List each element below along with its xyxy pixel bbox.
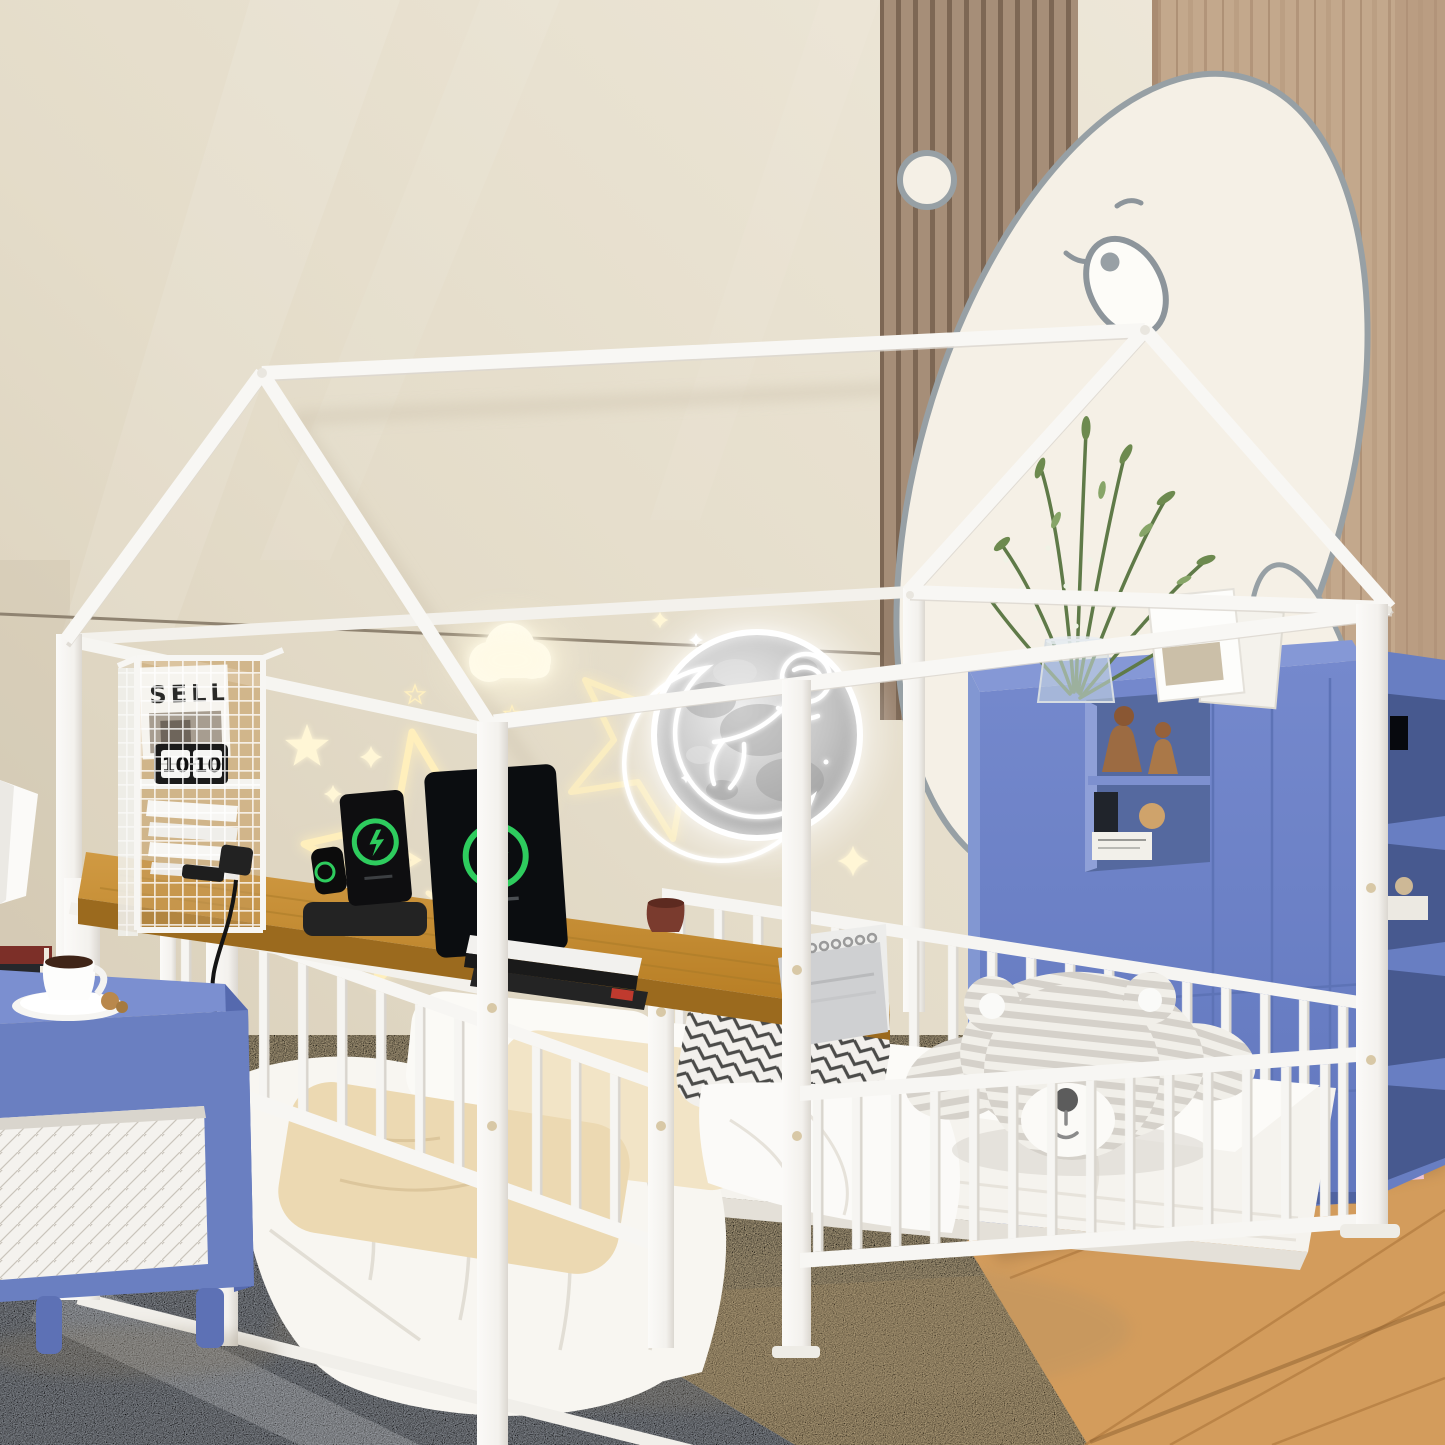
head-front-post xyxy=(477,722,508,1445)
foot-front-post xyxy=(1356,604,1388,1234)
wire-storage-cube: SELL 10 10 xyxy=(118,650,283,936)
cubby-ball xyxy=(1395,877,1413,895)
cabinet-open-shelves xyxy=(1085,690,1210,872)
usb-charger xyxy=(218,844,254,876)
phone-on-charger xyxy=(339,789,413,906)
nightstand-leg xyxy=(196,1288,224,1348)
product-photo: SELL 10 10 xyxy=(0,0,1445,1445)
nightstand-leg xyxy=(36,1296,62,1354)
red-cup xyxy=(647,898,685,932)
smartwatch-on-charger xyxy=(310,846,348,896)
scene-canvas: SELL 10 10 xyxy=(0,0,1445,1445)
fence-end-post xyxy=(648,962,674,1348)
